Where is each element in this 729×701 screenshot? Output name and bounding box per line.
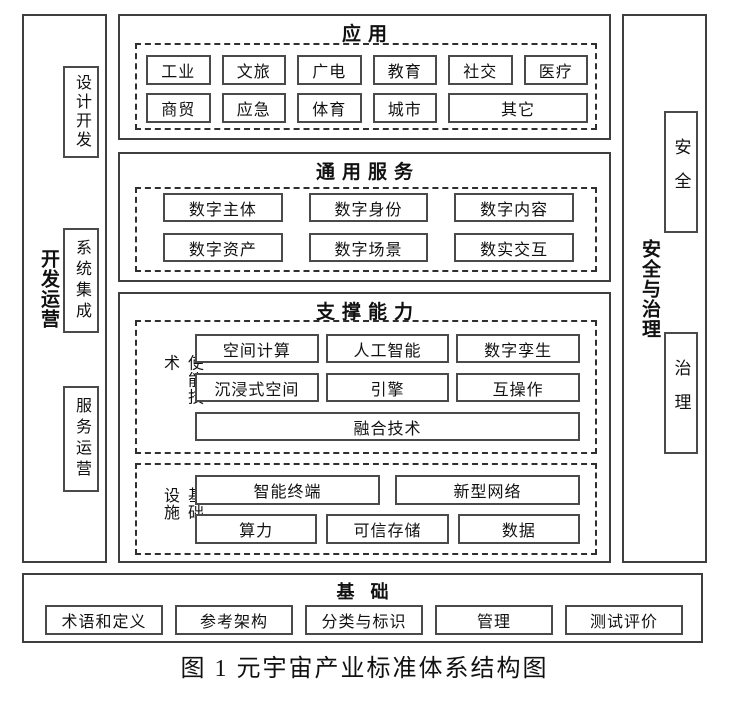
box-trusted-storage: 可信存储 [326,514,448,544]
box-emergency: 应急 [222,93,287,123]
box-convergence-tech: 融合技术 [195,412,580,441]
box-spatial-computing: 空间计算 [195,334,319,363]
box-design-development: 设计开发 [63,66,99,158]
box-ai: 人工智能 [326,334,450,363]
box-digital-subject: 数字主体 [163,193,283,222]
box-education: 教育 [373,55,438,85]
box-broadcasting: 广电 [297,55,362,85]
box-management: 管理 [435,605,553,635]
box-industry: 工业 [146,55,211,85]
application-title: 应用 [120,19,609,46]
general-services-group: 数字主体 数字身份 数字内容 数字资产 数字场景 数实交互 [135,187,597,272]
box-digital-scene: 数字场景 [309,233,429,262]
application-section: 应用 工业 文旅 广电 教育 社交 医疗 商贸 应急 体育 城市 其它 [118,14,611,140]
box-healthcare: 医疗 [524,55,589,85]
general-services-section: 通用服务 数字主体 数字身份 数字内容 数字资产 数字场景 数实交互 [118,152,611,282]
box-classification-identification: 分类与标识 [305,605,423,635]
foundation-title: 基础 [24,578,701,604]
box-terms-definitions: 术语和定义 [45,605,163,635]
box-digital-identity: 数字身份 [309,193,429,222]
box-engine: 引擎 [326,373,450,402]
enabling-tech-group: 使能技术 空间计算 人工智能 数字孪生 沉浸式空间 引擎 互操作 融合技术 [135,320,597,454]
box-commerce: 商贸 [146,93,211,123]
supporting-capability-section: 支撑能力 使能技术 空间计算 人工智能 数字孪生 沉浸式空间 引擎 互操作 融合… [118,292,611,563]
box-immersive-space: 沉浸式空间 [195,373,319,402]
box-sports: 体育 [297,93,362,123]
foundation-section: 基础 术语和定义 参考架构 分类与标识 管理 测试评价 [22,573,703,643]
box-digital-twin: 数字孪生 [456,334,580,363]
box-others: 其它 [448,93,588,123]
dev-operations-pillar: 开发运营 设计开发 系统集成 服务运营 [22,14,107,563]
box-city: 城市 [373,93,438,123]
box-system-integration: 系统集成 [63,228,99,333]
box-digital-asset: 数字资产 [163,233,283,262]
security-governance-pillar: 安全与治理 安全 治理 [622,14,707,563]
box-service-operation: 服务运营 [63,386,99,492]
dev-operations-label: 开发运营 [35,249,62,329]
figure-caption: 图 1 元宇宙产业标准体系结构图 [0,648,729,683]
infrastructure-group: 基础设施 智能终端 新型网络 算力 可信存储 数据 [135,463,597,555]
box-testing-evaluation: 测试评价 [565,605,683,635]
box-culture-tourism: 文旅 [222,55,287,85]
box-interoperability: 互操作 [456,373,580,402]
general-services-title: 通用服务 [120,157,609,184]
box-digital-content: 数字内容 [454,193,574,222]
box-computing-power: 算力 [195,514,317,544]
box-data: 数据 [458,514,580,544]
box-governance: 治理 [664,332,698,454]
box-social: 社交 [448,55,513,85]
application-group: 工业 文旅 广电 教育 社交 医疗 商贸 应急 体育 城市 其它 [135,43,597,130]
box-reference-architecture: 参考架构 [175,605,293,635]
box-security: 安全 [664,111,698,233]
box-smart-terminal: 智能终端 [195,475,380,505]
box-new-network: 新型网络 [395,475,580,505]
box-digital-real-interaction: 数实交互 [454,233,574,262]
metaverse-standard-structure-diagram: 开发运营 设计开发 系统集成 服务运营 安全与治理 安全 治理 应用 工业 文旅… [0,0,729,701]
security-governance-label: 安全与治理 [636,239,663,339]
